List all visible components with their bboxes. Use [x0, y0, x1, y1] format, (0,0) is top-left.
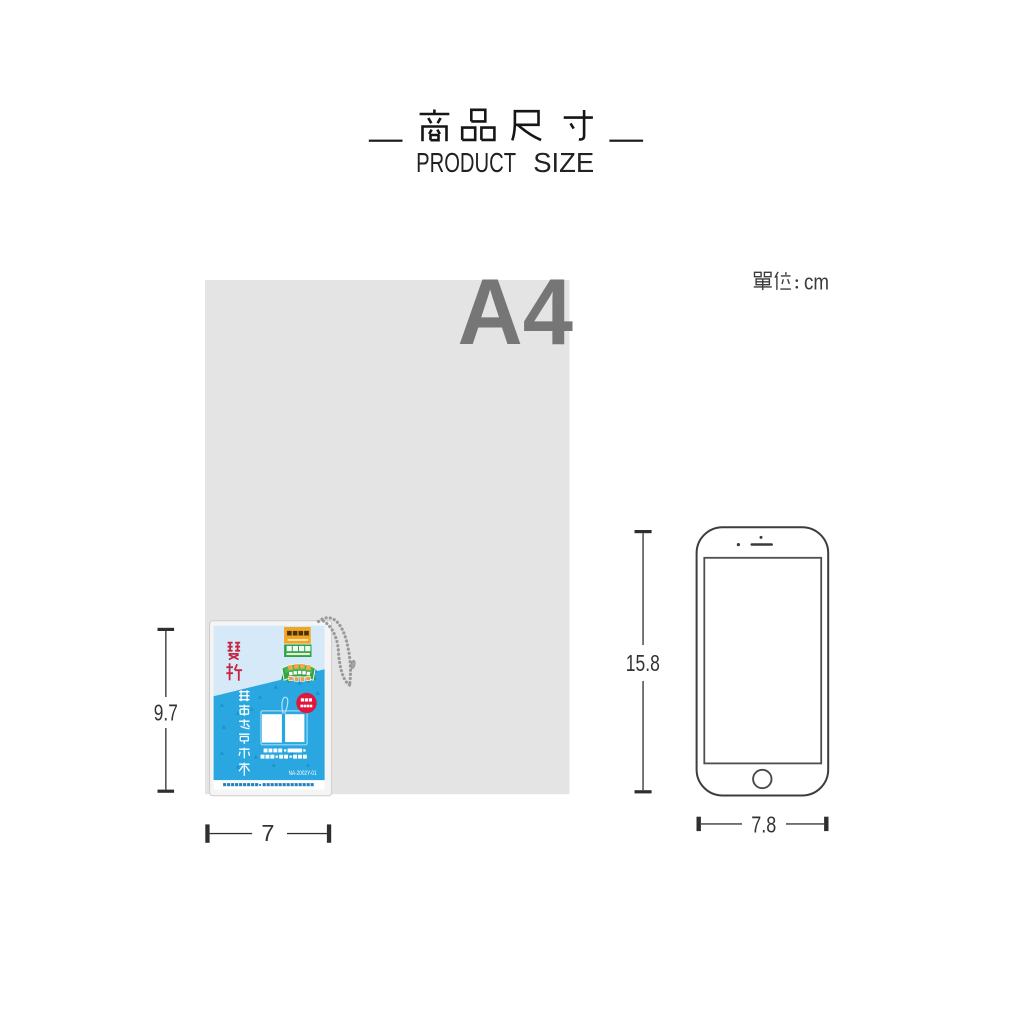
svg-text:NA-2002Y-01: NA-2002Y-01: [289, 770, 317, 777]
svg-text:15.8: 15.8: [626, 650, 660, 676]
svg-text:7.8: 7.8: [751, 812, 776, 838]
svg-text:A4: A4: [458, 259, 574, 364]
svg-text:cm: cm: [804, 269, 829, 294]
svg-text:7: 7: [261, 820, 274, 846]
svg-text:PRODUCT: PRODUCT: [416, 147, 516, 178]
svg-text:9.7: 9.7: [154, 700, 178, 726]
svg-text:SIZE: SIZE: [533, 147, 594, 178]
